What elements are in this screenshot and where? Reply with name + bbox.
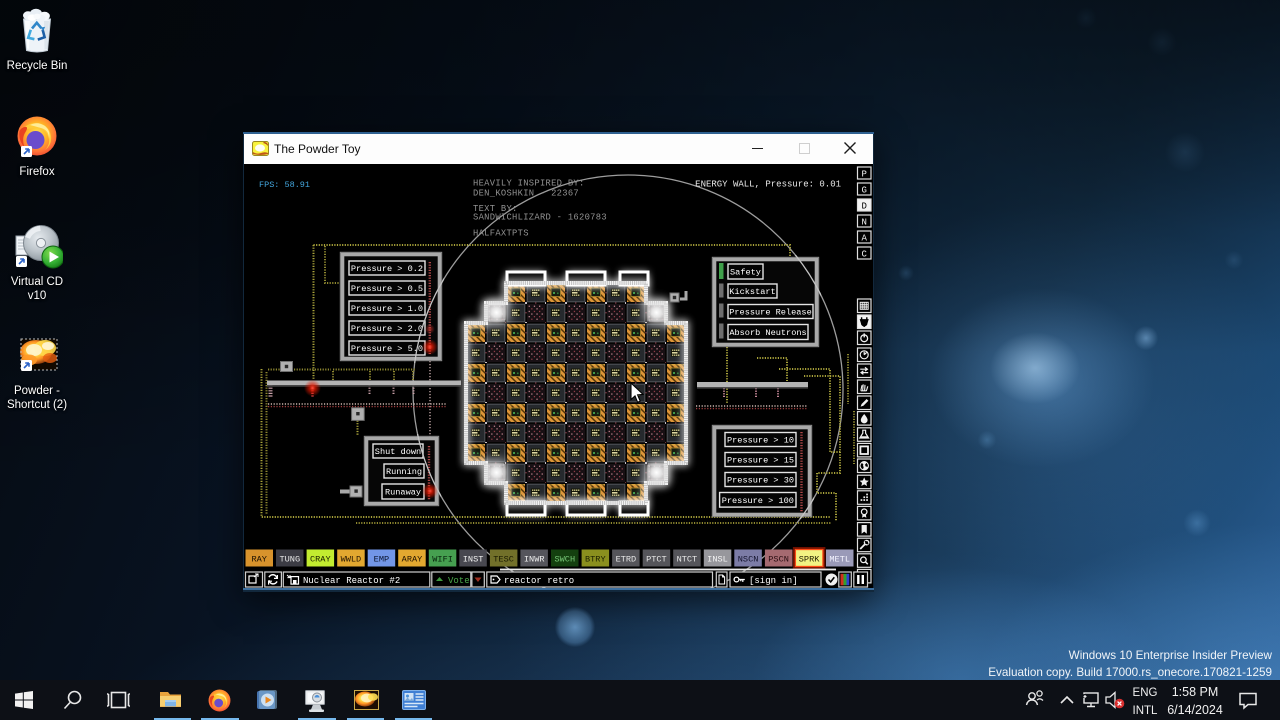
svg-text:INWR: INWR	[524, 555, 545, 565]
svg-text:INSL: INSL	[707, 555, 728, 565]
svg-text:Pressure > 1.0: Pressure > 1.0	[351, 304, 423, 314]
svg-text:Pressure > 30: Pressure > 30	[727, 476, 794, 486]
svg-text:Nuclear Reactor #2: Nuclear Reactor #2	[303, 576, 400, 586]
svg-text:Pressure > 0.5: Pressure > 0.5	[351, 284, 423, 294]
svg-text:NTCT: NTCT	[677, 555, 698, 565]
svg-text:Pressure Release: Pressure Release	[729, 308, 812, 318]
svg-text:Pressure > 5.0: Pressure > 5.0	[351, 344, 423, 354]
svg-text:HEAVILY INSPIRED BY:: HEAVILY INSPIRED BY:	[473, 179, 585, 189]
svg-text:Pressure > 2.0: Pressure > 2.0	[351, 324, 423, 334]
svg-text:EMP: EMP	[374, 555, 389, 565]
svg-text:Safety: Safety	[730, 268, 761, 278]
svg-text:WWLD: WWLD	[341, 555, 362, 565]
svg-text:PSCN: PSCN	[768, 555, 789, 565]
svg-text:DEN_KOSHKIN - 22367: DEN_KOSHKIN - 22367	[473, 189, 579, 199]
svg-text:TESC: TESC	[493, 555, 514, 565]
svg-text:HALFAXTPTS: HALFAXTPTS	[473, 229, 529, 239]
svg-text:Pressure > 100: Pressure > 100	[722, 496, 794, 506]
svg-text:Pressure > 15: Pressure > 15	[727, 456, 794, 466]
svg-text:ENERGY WALL, Pressure: 0.01: ENERGY WALL, Pressure: 0.01	[695, 180, 841, 190]
svg-text:[sign in]: [sign in]	[749, 576, 798, 586]
svg-text:SANDWICHLIZARD - 1620783: SANDWICHLIZARD - 1620783	[473, 213, 607, 223]
svg-text:Absorb Neutrons: Absorb Neutrons	[729, 328, 806, 338]
svg-text:RAY: RAY	[251, 555, 266, 565]
svg-text:Shut down: Shut down	[375, 447, 421, 457]
svg-text:G: G	[861, 186, 866, 196]
svg-text:Pressure > 10: Pressure > 10	[727, 436, 794, 446]
svg-text:ARAY: ARAY	[402, 555, 423, 565]
svg-text:P: P	[861, 170, 866, 180]
svg-text:ETRD: ETRD	[616, 555, 637, 565]
svg-text:N: N	[861, 218, 866, 228]
svg-text:NSCN: NSCN	[738, 555, 759, 565]
svg-text:SWCH: SWCH	[554, 555, 575, 565]
svg-text:Running: Running	[386, 467, 422, 477]
svg-text:C: C	[861, 250, 867, 260]
svg-text:SPRK: SPRK	[799, 555, 820, 565]
svg-text:INST: INST	[463, 555, 484, 565]
svg-text:FPS: 58.91: FPS: 58.91	[259, 180, 310, 190]
svg-text:D: D	[861, 202, 866, 212]
svg-text:Runaway: Runaway	[385, 488, 421, 498]
svg-text:METL: METL	[829, 555, 850, 565]
svg-text:Pressure > 0.2: Pressure > 0.2	[351, 264, 423, 274]
svg-text:PTCT: PTCT	[646, 555, 667, 565]
svg-text:Kickstart: Kickstart	[729, 287, 775, 297]
svg-text:Vote: Vote	[448, 576, 470, 586]
svg-text:WIFI: WIFI	[432, 555, 453, 565]
svg-text:TUNG: TUNG	[279, 555, 300, 565]
svg-text:A: A	[861, 234, 867, 244]
svg-text:BTRY: BTRY	[585, 555, 606, 565]
svg-text:reactor retro: reactor retro	[504, 576, 574, 586]
svg-text:CRAY: CRAY	[310, 555, 331, 565]
